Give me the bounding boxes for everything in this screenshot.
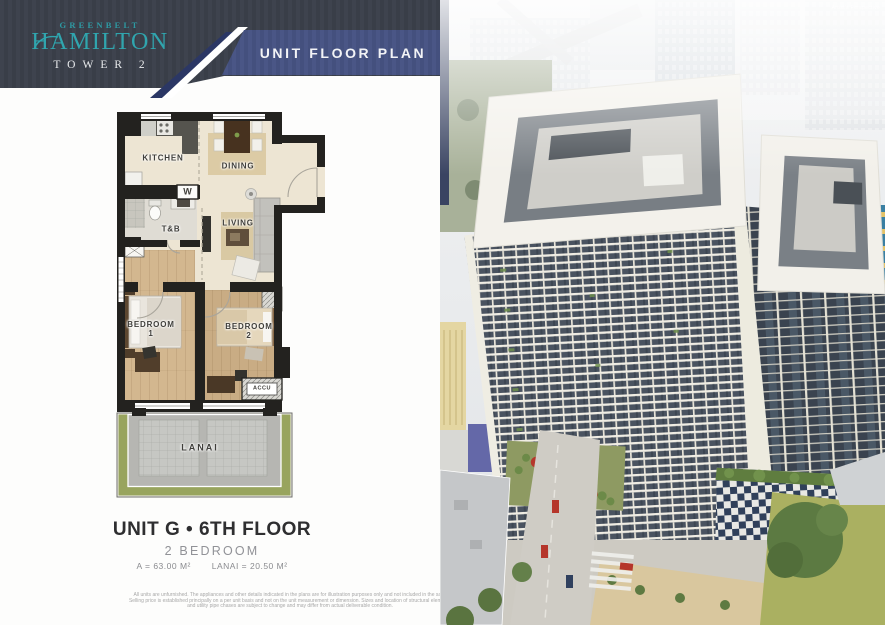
unit-areas: A = 63.00 M² LANAI = 20.50 M² — [0, 561, 424, 571]
room-label-living: LIVING — [222, 219, 253, 228]
unit-area-main: A = 63.00 M² — [136, 561, 190, 571]
disclaimer-line3: and utility pipe chases are subject to c… — [110, 604, 470, 610]
room-label-bedroom2: BEDROOM 2 — [225, 322, 272, 340]
artist-perspective-note: Artist's Perspective — [832, 5, 880, 11]
room-label-dining: DINING — [222, 162, 255, 171]
room-label-tnb: T&B — [162, 225, 181, 234]
lanai-area — [117, 408, 292, 497]
unit-title: UNIT G • 6TH FLOOR — [0, 519, 424, 541]
banner-title: UNIT FLOOR PLAN — [246, 30, 440, 75]
building-render — [440, 0, 885, 625]
unit-info: UNIT G • 6TH FLOOR 2 BEDROOM A = 63.00 M… — [0, 519, 424, 571]
disclaimer: All units are unfurnished. The appliance… — [110, 593, 470, 610]
floor-plan: KITCHEN DINING LIVING T&B W BEDROOM 1 BE… — [95, 90, 345, 520]
logo-swoosh-icon — [31, 33, 61, 51]
floor-plan-panel: GREENBELT HAMILTON TOWER 2 UNIT FLOOR PL… — [0, 0, 440, 625]
car-red-3 — [620, 562, 634, 570]
bedroom2-word: BEDROOM — [225, 322, 272, 331]
room-label-lanai: LANAI — [181, 444, 219, 453]
car-dark — [566, 575, 573, 588]
unit-area-lanai: LANAI = 20.50 M² — [212, 561, 288, 571]
room-label-kitchen: KITCHEN — [142, 154, 183, 163]
bedroom1-word: BEDROOM — [127, 320, 174, 329]
bedroom2-number: 2 — [246, 331, 251, 340]
room-label-bedroom1: BEDROOM 1 — [127, 320, 174, 338]
room-label-accu: ACCU — [253, 385, 271, 394]
brochure-page: GREENBELT HAMILTON TOWER 2 UNIT FLOOR PL… — [0, 0, 885, 625]
brand-logo: GREENBELT HAMILTON TOWER 2 — [25, 20, 175, 71]
floor-plan-drawing — [95, 90, 345, 520]
brand-tower: TOWER 2 — [25, 59, 175, 71]
room-label-washer: W — [183, 188, 192, 197]
unit-type: 2 BEDROOM — [0, 544, 424, 558]
building-perspective: Artist's Perspective — [440, 0, 885, 625]
bedroom1-number: 1 — [148, 329, 153, 338]
car-red-2 — [541, 545, 548, 558]
car-red-1 — [552, 500, 559, 513]
